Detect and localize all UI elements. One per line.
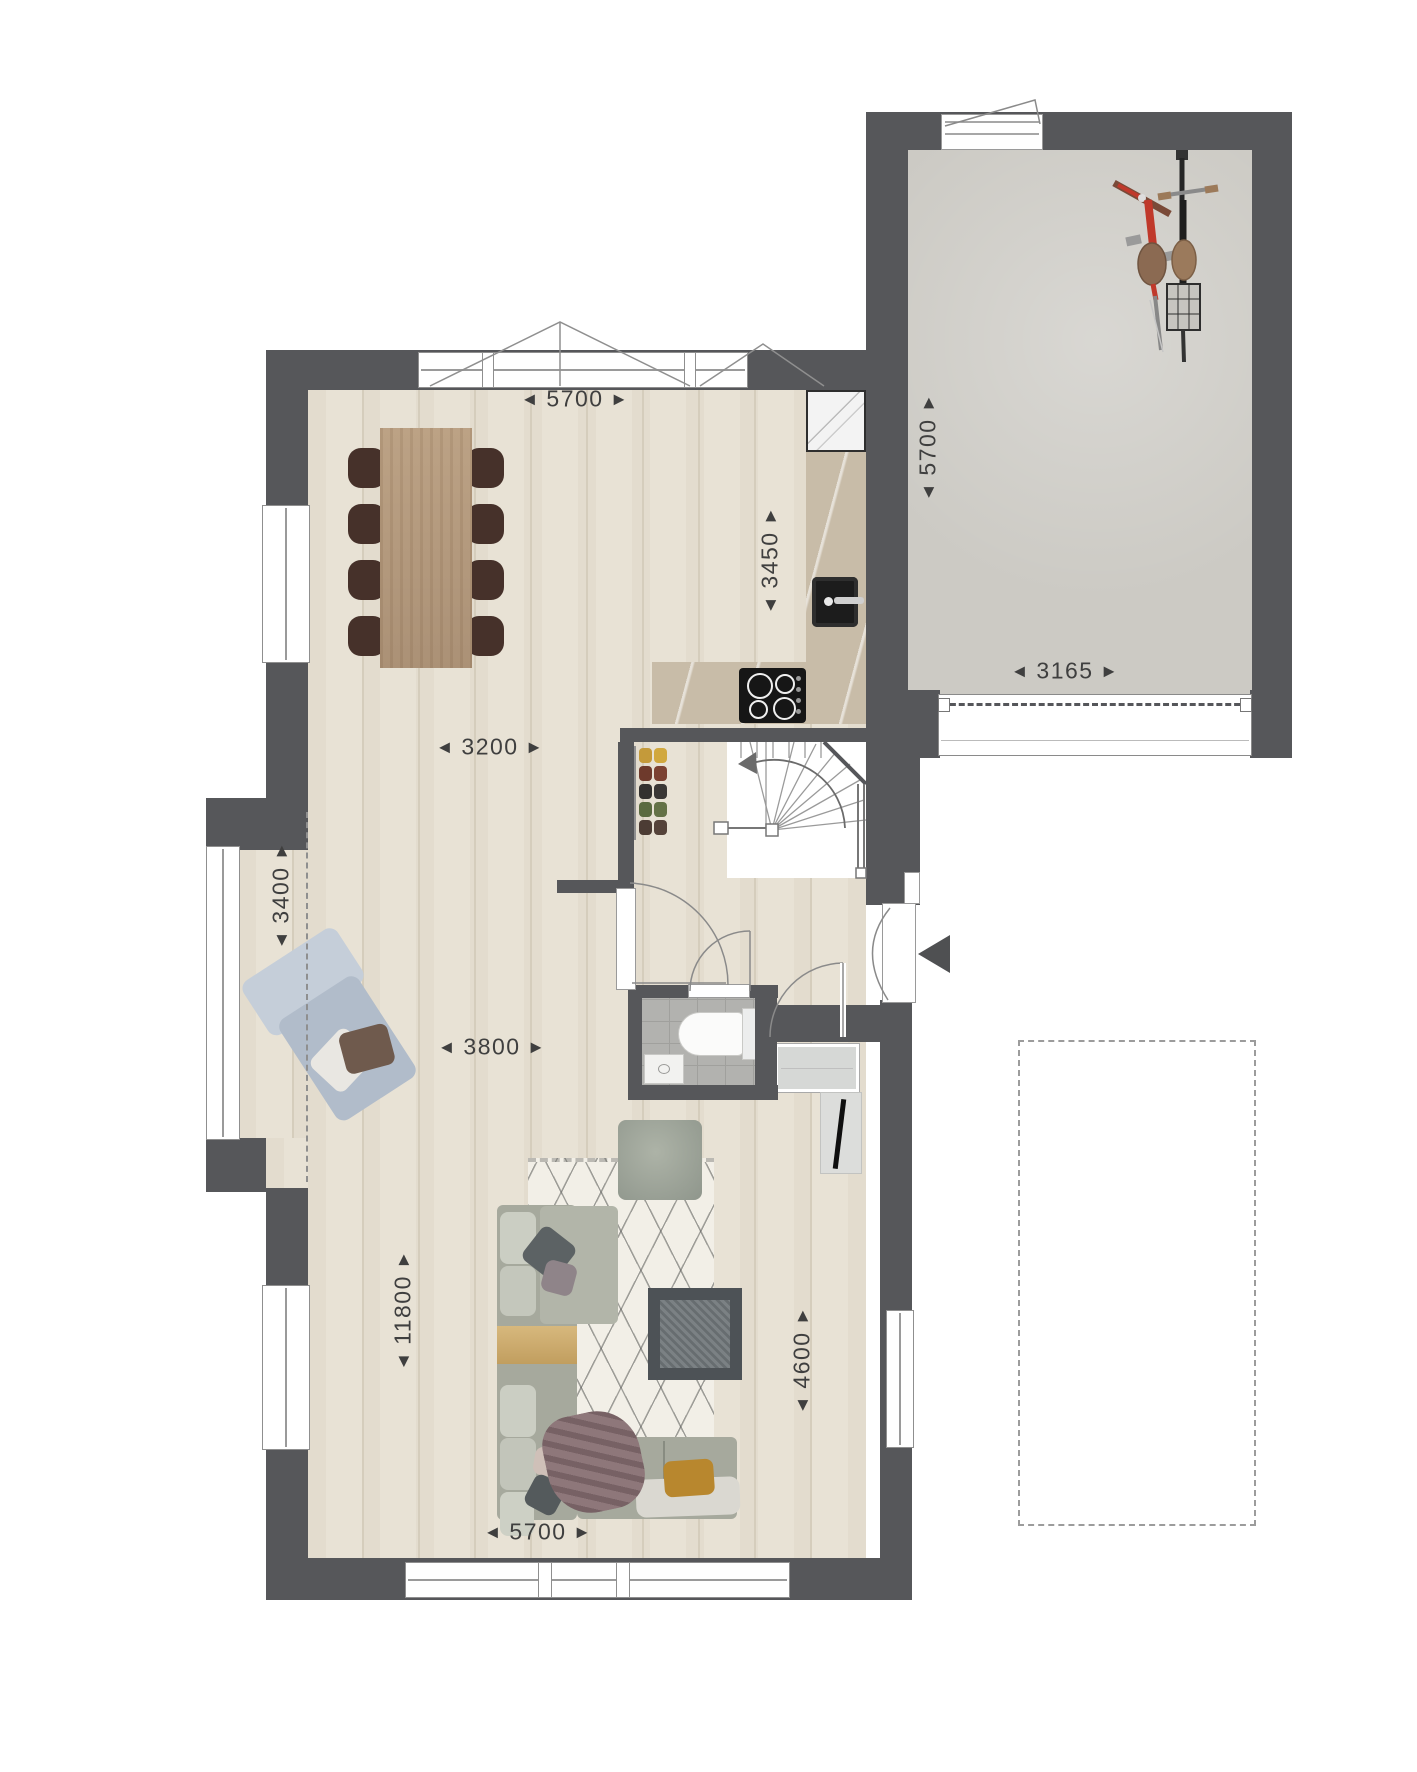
- dimension-label: ◀ 11800 ▶: [390, 1253, 417, 1367]
- table-top: [660, 1300, 730, 1368]
- dim-arrow-left: ◀: [395, 1355, 412, 1367]
- knob-icon: [796, 687, 801, 692]
- dim-arrow-left: ◀: [1014, 663, 1026, 680]
- dimension-label: ◀ 5700 ▶: [915, 396, 942, 498]
- garage-floor: [908, 150, 1252, 694]
- shoe-pair: [639, 766, 672, 781]
- burner-icon: [749, 700, 768, 719]
- dim-arrow-right: ▶: [614, 391, 626, 408]
- bathroom-wall: [628, 985, 690, 998]
- dim-value: 11800: [390, 1275, 417, 1345]
- toilet: [678, 1012, 744, 1056]
- cooktop: [739, 668, 806, 723]
- dim-arrow-left: ◀: [439, 739, 451, 756]
- dim-arrow-left: ◀: [441, 1039, 453, 1056]
- window: [262, 505, 310, 663]
- dimension-label: ◀ 3200 ▶: [439, 734, 541, 761]
- garage-door-end: [1240, 698, 1252, 712]
- dim-arrow-left: ◀: [524, 391, 536, 408]
- window: [418, 352, 748, 388]
- wall: [880, 1042, 912, 1558]
- window: [405, 1562, 790, 1598]
- garage-side-door: [941, 114, 1043, 150]
- wall: [880, 1000, 912, 1044]
- drain-icon: [824, 597, 833, 606]
- dim-arrow-right: ▶: [794, 1309, 811, 1321]
- window-mullion: [482, 352, 494, 388]
- entry-niche: [904, 872, 920, 904]
- window: [262, 1285, 310, 1450]
- tv-icon: [833, 1099, 846, 1169]
- shoe-rack: [634, 746, 672, 840]
- dimension-label: ◀ 5700 ▶: [487, 1519, 589, 1546]
- dimension-label: ◀ 3165 ▶: [1014, 658, 1116, 685]
- burner-icon: [775, 674, 795, 694]
- dim-arrow-left: ◀: [920, 486, 937, 498]
- garage-wall: [866, 112, 908, 692]
- toilet-tank: [742, 1008, 756, 1060]
- faucet-icon: [834, 597, 864, 604]
- dim-value: 3200: [461, 734, 518, 761]
- staircase: [727, 742, 866, 878]
- garage-door-end: [938, 698, 950, 712]
- garage-wall: [1252, 112, 1292, 692]
- dim-value: 5700: [915, 418, 942, 475]
- bathroom-wall: [628, 985, 642, 1097]
- knob-icon: [796, 709, 801, 714]
- dimension-label: ◀ 5700 ▶: [524, 386, 626, 413]
- coffee-table-dark: [648, 1288, 742, 1380]
- parking-space-outline: [1018, 1040, 1256, 1526]
- floor-plan: ◀ 5700 ▶ ◀ 5700 ▶ ◀ 3450 ▶ ◀ 3165 ▶ ◀ 32…: [0, 0, 1417, 1772]
- dim-value: 4600: [789, 1331, 816, 1388]
- shoe-pair: [639, 802, 672, 817]
- garage-wall: [1250, 690, 1292, 758]
- hall-door-opening: [616, 888, 636, 990]
- dim-value: 3400: [268, 866, 295, 923]
- dim-arrow-left: ◀: [762, 599, 779, 611]
- dim-arrow-right: ▶: [529, 739, 541, 756]
- burner-icon: [773, 697, 796, 720]
- wall: [206, 798, 266, 850]
- coffee-table-gold: [497, 1326, 577, 1364]
- window-mullion: [684, 352, 696, 388]
- window-mullion: [616, 1562, 630, 1598]
- dim-arrow-right: ▶: [920, 396, 937, 408]
- dim-arrow-right: ▶: [273, 844, 290, 856]
- dimension-label: ◀ 3800 ▶: [441, 1034, 543, 1061]
- wall: [206, 1138, 266, 1192]
- tv-unit: [820, 1092, 862, 1174]
- bay-window: [206, 846, 240, 1140]
- dimension-label: ◀ 3450 ▶: [757, 509, 784, 611]
- shoe-pair: [639, 820, 672, 835]
- dining-table: [380, 428, 472, 668]
- window: [886, 1310, 914, 1448]
- dim-arrow-right: ▶: [395, 1253, 412, 1265]
- dim-arrow-right: ▶: [577, 1524, 589, 1541]
- dim-value: 3800: [463, 1034, 520, 1061]
- wall: [618, 742, 634, 892]
- burner-icon: [747, 673, 773, 699]
- bathroom-wall: [755, 985, 777, 1100]
- dim-arrow-right: ▶: [762, 509, 779, 521]
- wall: [620, 728, 870, 742]
- dim-arrow-right: ▶: [531, 1039, 543, 1056]
- garage-overhead-door: [938, 694, 1252, 756]
- bathroom-door-opening: [688, 984, 750, 998]
- entrance-arrow-icon: [918, 935, 950, 973]
- entry-closet: [775, 1044, 859, 1092]
- kitchen-tall-cabinet: [806, 390, 866, 452]
- dimension-label: ◀ 4600 ▶: [789, 1309, 816, 1411]
- garage-wall: [866, 112, 1292, 150]
- dim-value: 5700: [509, 1519, 566, 1546]
- sofa-pillow: [500, 1266, 536, 1316]
- dim-arrow-left: ◀: [487, 1524, 499, 1541]
- pouf: [618, 1120, 702, 1200]
- overhang-dashed-line: [306, 812, 308, 1182]
- shoe-pair: [639, 784, 672, 799]
- sofa-pillow: [500, 1385, 536, 1437]
- sofa-pillow: [500, 1438, 536, 1490]
- entry-door: [882, 903, 916, 1003]
- dim-value: 5700: [546, 386, 603, 413]
- dim-arrow-right: ▶: [1104, 663, 1116, 680]
- bathroom-sink: [644, 1054, 684, 1084]
- garage-wall: [866, 690, 940, 758]
- dim-value: 3165: [1036, 658, 1093, 685]
- dimension-label: ◀ 3400 ▶: [268, 844, 295, 946]
- dim-value: 3450: [757, 531, 784, 588]
- window-mullion: [538, 1562, 552, 1598]
- dim-arrow-left: ◀: [794, 1399, 811, 1411]
- dim-arrow-left: ◀: [273, 934, 290, 946]
- kitchen-sink: [812, 577, 858, 627]
- knob-icon: [796, 676, 801, 681]
- knob-icon: [796, 698, 801, 703]
- bay-floor-lower: [266, 1138, 308, 1190]
- gold-pillow: [663, 1458, 715, 1497]
- shoe-pair: [639, 748, 672, 763]
